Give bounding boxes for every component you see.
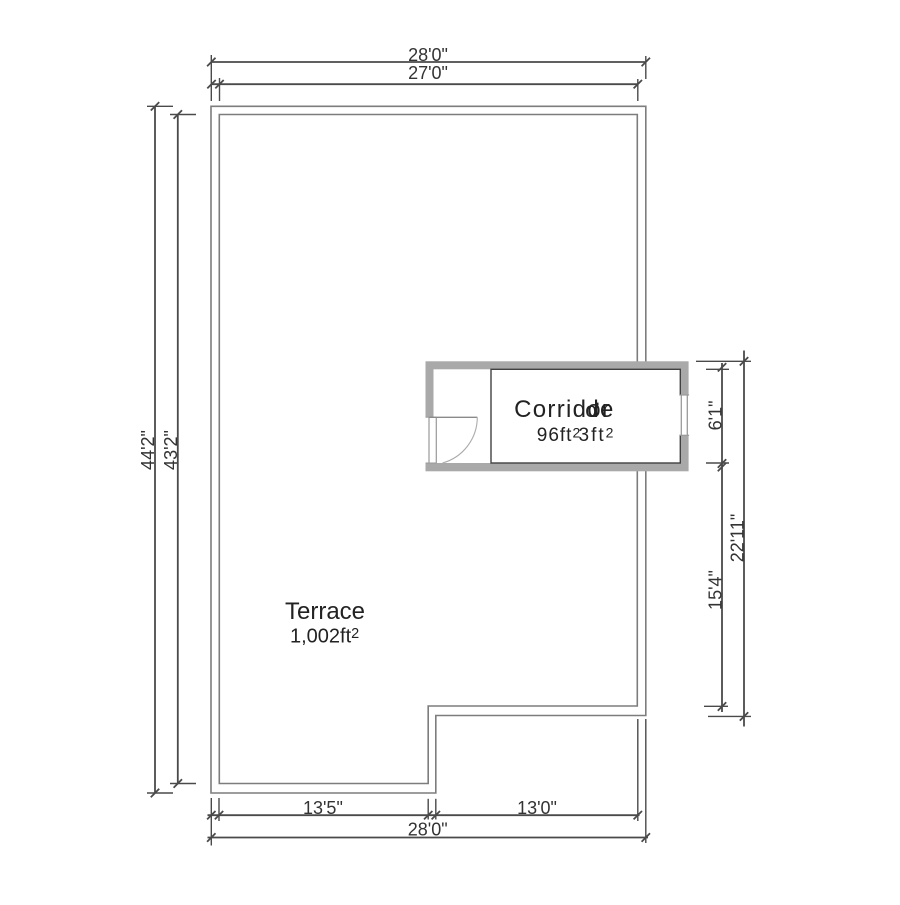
svg-text:6'1": 6'1" — [705, 400, 725, 430]
svg-text:13'0": 13'0" — [517, 798, 557, 818]
svg-text:Terrace: Terrace — [285, 598, 365, 625]
svg-text:44'2": 44'2" — [138, 430, 158, 470]
svg-text:l: l — [593, 396, 598, 423]
svg-text:22'11": 22'11" — [727, 514, 747, 563]
svg-text:15'4": 15'4" — [705, 570, 725, 610]
svg-text:43'2": 43'2" — [161, 430, 181, 470]
svg-text:28'0": 28'0" — [408, 820, 448, 840]
svg-text:13'5": 13'5" — [303, 798, 343, 818]
svg-text:27'0": 27'0" — [408, 63, 448, 83]
svg-text:28'0": 28'0" — [408, 45, 448, 65]
svg-text:1,002ft2: 1,002ft2 — [290, 626, 359, 648]
svg-text:e: e — [600, 396, 613, 423]
